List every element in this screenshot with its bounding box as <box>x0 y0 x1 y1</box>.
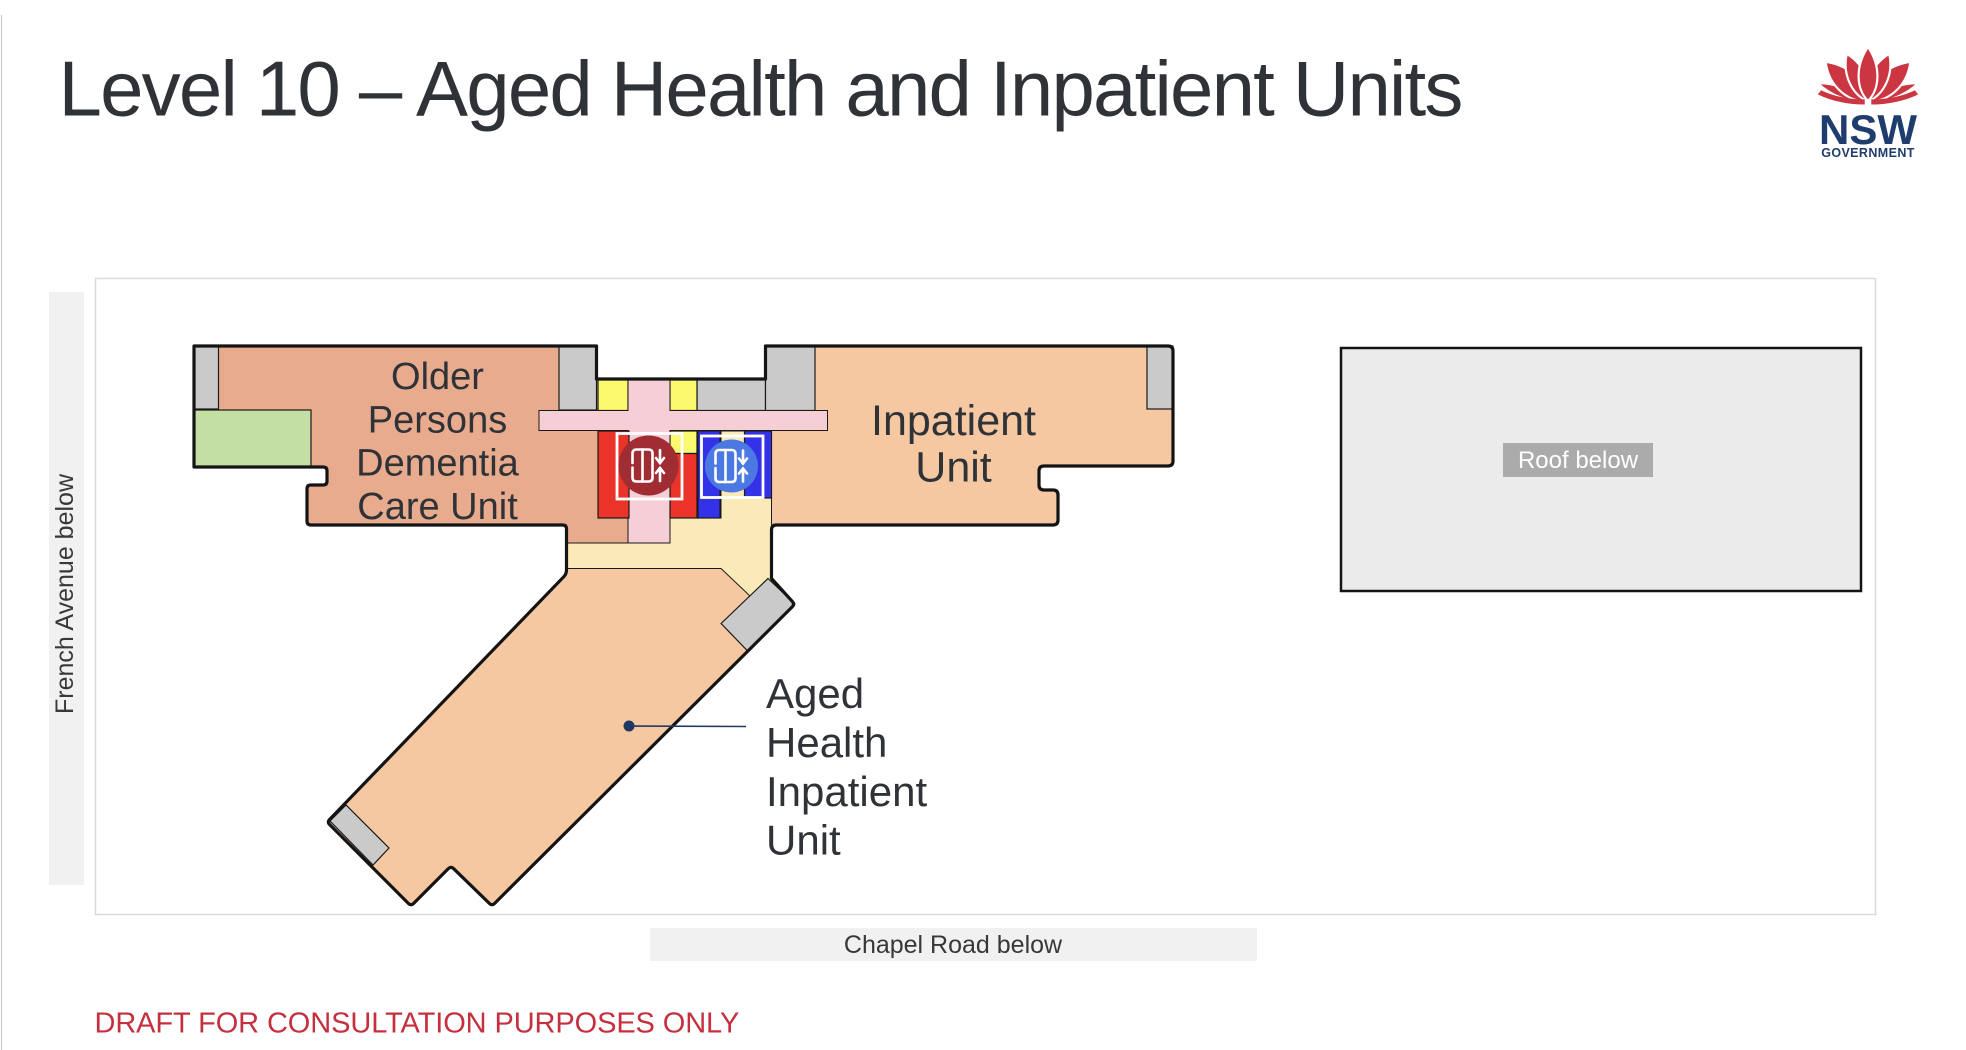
svg-text:Roof below: Roof below <box>1518 447 1639 474</box>
svg-text:French Avenue below: French Avenue below <box>51 473 79 714</box>
svg-text:Inpatient: Inpatient <box>766 768 927 815</box>
svg-text:Health: Health <box>766 719 887 766</box>
svg-text:Aged: Aged <box>766 670 864 717</box>
svg-text:Unit: Unit <box>766 817 841 864</box>
svg-text:Dementia: Dementia <box>356 443 519 485</box>
svg-text:Older: Older <box>391 356 484 398</box>
svg-text:Unit: Unit <box>915 444 992 492</box>
svg-text:Level 10 – Aged Health and Inp: Level 10 – Aged Health and Inpatient Uni… <box>59 45 1462 133</box>
svg-text:GOVERNMENT: GOVERNMENT <box>1821 146 1915 160</box>
svg-text:Inpatient: Inpatient <box>871 397 1036 445</box>
svg-text:Persons: Persons <box>368 400 507 442</box>
svg-text:Chapel Road below: Chapel Road below <box>844 931 1063 959</box>
svg-text:DRAFT FOR CONSULTATION PURPOSE: DRAFT FOR CONSULTATION PURPOSES ONLY <box>95 1008 740 1040</box>
svg-text:Care Unit: Care Unit <box>357 486 518 528</box>
